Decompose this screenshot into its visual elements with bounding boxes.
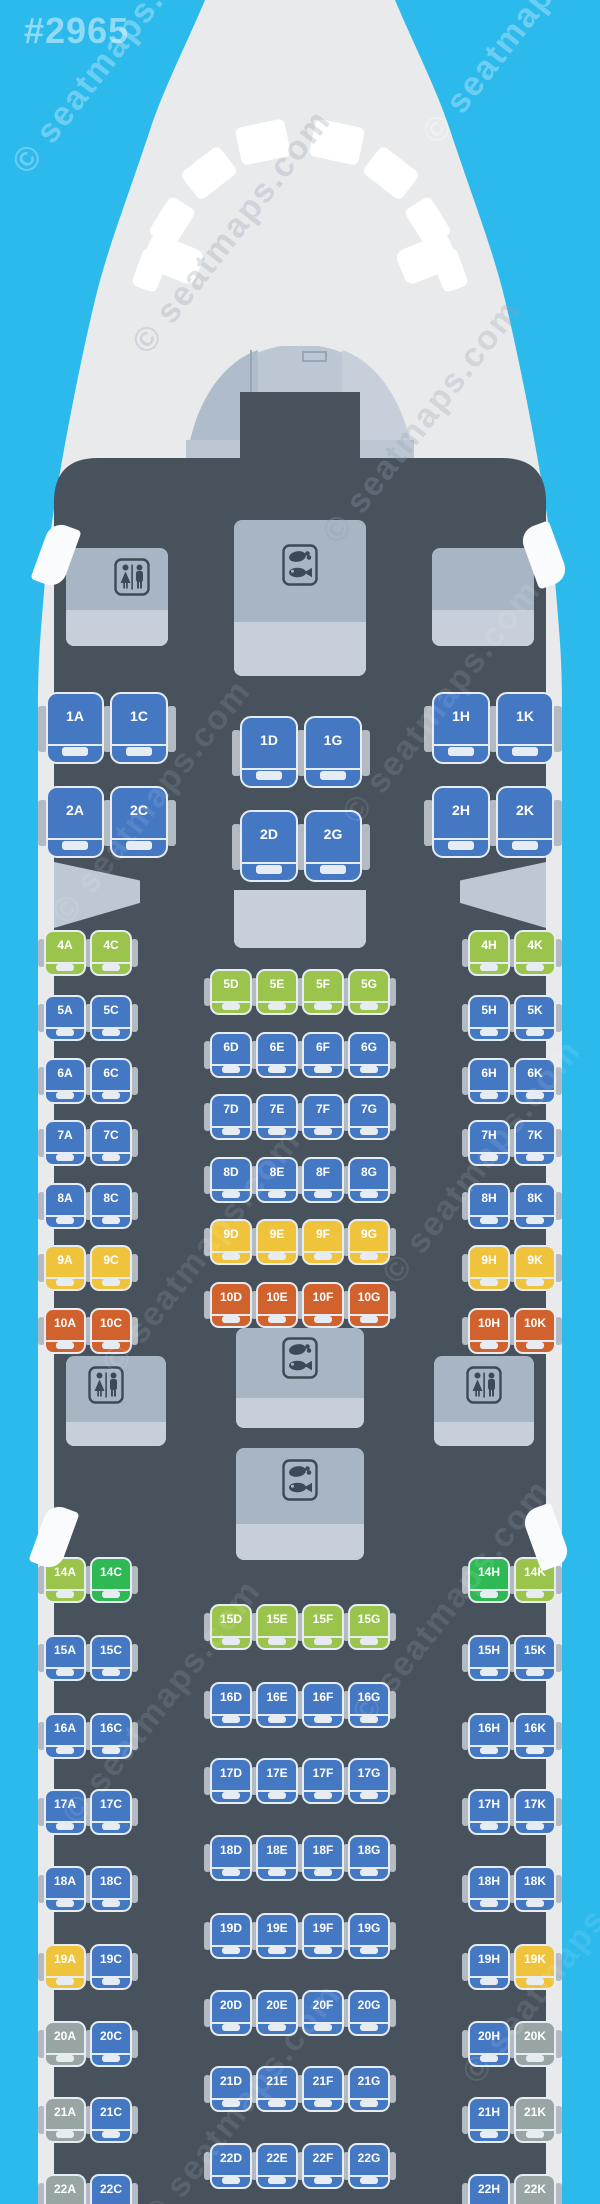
seat-label: 7G: [361, 1102, 377, 1116]
seat-19f[interactable]: 19F: [302, 1913, 344, 1959]
armrest: [389, 1228, 396, 1256]
seat-label: 19A: [54, 1952, 76, 1966]
seat-2c[interactable]: 2C: [110, 786, 168, 858]
seat-label: 2G: [324, 826, 343, 842]
armrest: [389, 1166, 396, 1194]
seat-15k[interactable]: 15K: [514, 1635, 556, 1681]
seat-20h[interactable]: 20H: [468, 2021, 510, 2067]
seat-label: 5G: [361, 977, 377, 991]
seat-17a[interactable]: 17A: [44, 1789, 86, 1835]
seat-10k[interactable]: 10K: [514, 1308, 556, 1354]
seat-1c[interactable]: 1C: [110, 692, 168, 764]
armrest: [553, 706, 562, 752]
seat-label: 19G: [358, 1921, 381, 1935]
seat-label: 16H: [478, 1721, 500, 1735]
seat-label: 19K: [524, 1952, 546, 1966]
seat-7f[interactable]: 7F: [302, 1094, 344, 1140]
seat-19d[interactable]: 19D: [210, 1913, 252, 1959]
monument-counter: [432, 610, 534, 646]
armrest: [555, 1129, 562, 1157]
seat-label: 7K: [527, 1128, 542, 1142]
seat-label: 21A: [54, 2105, 76, 2119]
seat-label: 22C: [100, 2182, 122, 2196]
seat-7e[interactable]: 7E: [256, 1094, 298, 1140]
seat-9f[interactable]: 9F: [302, 1219, 344, 1265]
seat-label: 15H: [478, 1643, 500, 1657]
mid-galley-divider: [234, 890, 366, 948]
seat-10c[interactable]: 10C: [90, 1308, 132, 1354]
seat-label: 4H: [481, 938, 496, 952]
seat-label: 4C: [103, 938, 118, 952]
seat-6e[interactable]: 6E: [256, 1032, 298, 1078]
seat-7c[interactable]: 7C: [90, 1120, 132, 1166]
seat-21h[interactable]: 21H: [468, 2097, 510, 2143]
seat-16e[interactable]: 16E: [256, 1682, 298, 1728]
mid-galley-forward: [236, 1328, 364, 1428]
seat-9e[interactable]: 9E: [256, 1219, 298, 1265]
seat-20e[interactable]: 20E: [256, 1990, 298, 2036]
armrest: [131, 2030, 138, 2058]
seat-label: 7D: [223, 1102, 238, 1116]
meal-icon: [282, 1337, 318, 1384]
seat-8k[interactable]: 8K: [514, 1183, 556, 1229]
seat-label: 20E: [266, 1998, 287, 2012]
seat-label: 1G: [324, 732, 343, 748]
seat-15g[interactable]: 15G: [348, 1604, 390, 1650]
wc-icon: [88, 1366, 124, 1404]
seat-label: 16F: [313, 1690, 334, 1704]
seat-label: 1H: [452, 708, 470, 724]
seat-1d[interactable]: 1D: [240, 716, 298, 788]
monument-counter: [434, 1422, 534, 1446]
seat-label: 21G: [358, 2074, 381, 2088]
seat-18k[interactable]: 18K: [514, 1866, 556, 1912]
armrest: [555, 1875, 562, 1903]
seat-4c[interactable]: 4C: [90, 930, 132, 976]
seat-22a[interactable]: 22A: [44, 2174, 86, 2204]
seat-label: 15E: [266, 1612, 287, 1626]
seat-18f[interactable]: 18F: [302, 1835, 344, 1881]
wc-icon: [114, 558, 150, 596]
seat-1k[interactable]: 1K: [496, 692, 554, 764]
meal-icon: [282, 544, 318, 591]
seat-label: 7E: [270, 1102, 285, 1116]
seat-18e[interactable]: 18E: [256, 1835, 298, 1881]
seat-label: 2C: [130, 802, 148, 818]
seat-15c[interactable]: 15C: [90, 1635, 132, 1681]
armrest: [167, 800, 176, 846]
seat-5h[interactable]: 5H: [468, 995, 510, 1041]
seat-16g[interactable]: 16G: [348, 1682, 390, 1728]
armrest: [131, 1004, 138, 1032]
seat-14c[interactable]: 14C: [90, 1557, 132, 1603]
seat-20k[interactable]: 20K: [514, 2021, 556, 2067]
armrest: [389, 1999, 396, 2027]
front-galley-right: [432, 548, 534, 646]
armrest: [555, 2106, 562, 2134]
seat-label: 5C: [103, 1003, 118, 1017]
seat-20c[interactable]: 20C: [90, 2021, 132, 2067]
seat-19c[interactable]: 19C: [90, 1944, 132, 1990]
seat-17c[interactable]: 17C: [90, 1789, 132, 1835]
seat-label: 9A: [57, 1253, 72, 1267]
seat-4k[interactable]: 4K: [514, 930, 556, 976]
seat-label: 8K: [527, 1191, 542, 1205]
seat-9a[interactable]: 9A: [44, 1245, 86, 1291]
seat-15a[interactable]: 15A: [44, 1635, 86, 1681]
seat-22d[interactable]: 22D: [210, 2143, 252, 2189]
seat-label: 20K: [524, 2029, 546, 2043]
monument-counter: [66, 610, 168, 646]
seat-16h[interactable]: 16H: [468, 1713, 510, 1759]
seat-label: 17F: [313, 1766, 334, 1780]
seat-label: 18C: [100, 1874, 122, 1888]
seat-label: 2K: [516, 802, 534, 818]
seat-label: 20A: [54, 2029, 76, 2043]
seat-1g[interactable]: 1G: [304, 716, 362, 788]
seat-22h[interactable]: 22H: [468, 2174, 510, 2204]
seat-2g[interactable]: 2G: [304, 810, 362, 882]
seat-21g[interactable]: 21G: [348, 2066, 390, 2112]
seat-6a[interactable]: 6A: [44, 1058, 86, 1104]
seat-18c[interactable]: 18C: [90, 1866, 132, 1912]
seat-9c[interactable]: 9C: [90, 1245, 132, 1291]
seat-19e[interactable]: 19E: [256, 1913, 298, 1959]
armrest: [555, 939, 562, 967]
armrest: [555, 2030, 562, 2058]
seat-label: 7H: [481, 1128, 496, 1142]
armrest: [555, 1566, 562, 1594]
seat-16a[interactable]: 16A: [44, 1713, 86, 1759]
seat-6g[interactable]: 6G: [348, 1032, 390, 1078]
seat-label: 20H: [478, 2029, 500, 2043]
monument-counter: [234, 622, 366, 676]
armrest: [389, 1103, 396, 1131]
seat-17k[interactable]: 17K: [514, 1789, 556, 1835]
monument-counter: [66, 1422, 166, 1446]
wc-icon: [114, 558, 150, 601]
seat-5f[interactable]: 5F: [302, 969, 344, 1015]
seat-10f[interactable]: 10F: [302, 1282, 344, 1328]
seat-8d[interactable]: 8D: [210, 1157, 252, 1203]
seat-22g[interactable]: 22G: [348, 2143, 390, 2189]
wc-icon: [466, 1366, 502, 1409]
armrest: [389, 1291, 396, 1319]
armrest: [131, 1317, 138, 1345]
seat-label: 16D: [220, 1690, 242, 1704]
seat-label: 18A: [54, 1874, 76, 1888]
seat-9d[interactable]: 9D: [210, 1219, 252, 1265]
seat-10h[interactable]: 10H: [468, 1308, 510, 1354]
seat-7a[interactable]: 7A: [44, 1120, 86, 1166]
armrest: [131, 1722, 138, 1750]
seat-label: 18D: [220, 1843, 242, 1857]
seat-label: 19C: [100, 1952, 122, 1966]
armrest: [131, 1566, 138, 1594]
seat-label: 6F: [316, 1040, 330, 1054]
seat-label: 22H: [478, 2182, 500, 2196]
seat-1a[interactable]: 1A: [46, 692, 104, 764]
seat-label: 9C: [103, 1253, 118, 1267]
seat-label: 19H: [478, 1952, 500, 1966]
seat-label: 5A: [57, 1003, 72, 1017]
armrest: [131, 1254, 138, 1282]
seat-8h[interactable]: 8H: [468, 1183, 510, 1229]
seat-8e[interactable]: 8E: [256, 1157, 298, 1203]
armrest: [389, 1041, 396, 1069]
seat-label: 1C: [130, 708, 148, 724]
armrest: [555, 1722, 562, 1750]
seat-15d[interactable]: 15D: [210, 1604, 252, 1650]
seat-label: 22G: [358, 2151, 381, 2165]
seat-label: 20C: [100, 2029, 122, 2043]
seat-label: 1A: [66, 708, 84, 724]
seat-label: 19F: [313, 1921, 334, 1935]
seat-8a[interactable]: 8A: [44, 1183, 86, 1229]
seat-label: 18F: [313, 1843, 334, 1857]
armrest: [131, 1067, 138, 1095]
seat-2a[interactable]: 2A: [46, 786, 104, 858]
seat-label: 22F: [313, 2151, 334, 2165]
seat-6k[interactable]: 6K: [514, 1058, 556, 1104]
armrest: [131, 1192, 138, 1220]
seat-5k[interactable]: 5K: [514, 995, 556, 1041]
seat-label: 17C: [100, 1797, 122, 1811]
seat-21c[interactable]: 21C: [90, 2097, 132, 2143]
seat-label: 22K: [524, 2182, 546, 2196]
seat-16k[interactable]: 16K: [514, 1713, 556, 1759]
seat-20g[interactable]: 20G: [348, 1990, 390, 2036]
seat-label: 6C: [103, 1066, 118, 1080]
seat-label: 8A: [57, 1191, 72, 1205]
front-lavatory-left: [66, 548, 168, 646]
seat-label: 15K: [524, 1643, 546, 1657]
seat-5g[interactable]: 5G: [348, 969, 390, 1015]
seat-label: 18E: [266, 1843, 287, 1857]
seat-5e[interactable]: 5E: [256, 969, 298, 1015]
seat-label: 21F: [313, 2074, 334, 2088]
seat-20a[interactable]: 20A: [44, 2021, 86, 2067]
seat-6c[interactable]: 6C: [90, 1058, 132, 1104]
seat-4a[interactable]: 4A: [44, 930, 86, 976]
seat-9g[interactable]: 9G: [348, 1219, 390, 1265]
seat-15h[interactable]: 15H: [468, 1635, 510, 1681]
seat-label: 15C: [100, 1643, 122, 1657]
seat-7g[interactable]: 7G: [348, 1094, 390, 1140]
armrest: [131, 1798, 138, 1826]
armrest: [361, 824, 370, 870]
seat-5c[interactable]: 5C: [90, 995, 132, 1041]
seat-label: 22E: [266, 2151, 287, 2165]
seat-label: 8G: [361, 1165, 377, 1179]
seat-label: 14A: [54, 1565, 76, 1579]
seat-14h[interactable]: 14H: [468, 1557, 510, 1603]
seat-label: 14C: [100, 1565, 122, 1579]
seat-18g[interactable]: 18G: [348, 1835, 390, 1881]
seat-21d[interactable]: 21D: [210, 2066, 252, 2112]
seat-label: 10K: [524, 1316, 546, 1330]
armrest: [555, 1798, 562, 1826]
seat-label: 1K: [516, 708, 534, 724]
seat-label: 6G: [361, 1040, 377, 1054]
seat-8g[interactable]: 8G: [348, 1157, 390, 1203]
seat-label: 18K: [524, 1874, 546, 1888]
seat-label: 14H: [478, 1565, 500, 1579]
seat-label: 16C: [100, 1721, 122, 1735]
seat-9k[interactable]: 9K: [514, 1245, 556, 1291]
seat-label: 8C: [103, 1191, 118, 1205]
seat-15e[interactable]: 15E: [256, 1604, 298, 1650]
armrest: [553, 800, 562, 846]
seat-label: 10C: [100, 1316, 122, 1330]
seat-4h[interactable]: 4H: [468, 930, 510, 976]
seat-21f[interactable]: 21F: [302, 2066, 344, 2112]
seat-label: 20G: [358, 1998, 381, 2012]
seat-label: 20D: [220, 1998, 242, 2012]
seat-label: 22A: [54, 2182, 76, 2196]
armrest: [131, 1644, 138, 1672]
seat-16c[interactable]: 16C: [90, 1713, 132, 1759]
seat-8f[interactable]: 8F: [302, 1157, 344, 1203]
mid-lavatory-right: [434, 1356, 534, 1446]
seat-label: 10H: [478, 1316, 500, 1330]
seat-19k[interactable]: 19K: [514, 1944, 556, 1990]
armrest: [555, 1953, 562, 1981]
mid-lavatory-left: [66, 1356, 166, 1446]
seat-label: 9G: [361, 1227, 377, 1241]
seat-label: 18H: [478, 1874, 500, 1888]
seat-label: 1D: [260, 732, 278, 748]
seat-label: 22D: [220, 2151, 242, 2165]
seat-16d[interactable]: 16D: [210, 1682, 252, 1728]
seat-10a[interactable]: 10A: [44, 1308, 86, 1354]
armrest: [389, 1844, 396, 1872]
seat-18a[interactable]: 18A: [44, 1866, 86, 1912]
seat-6f[interactable]: 6F: [302, 1032, 344, 1078]
seat-1h[interactable]: 1H: [432, 692, 490, 764]
seat-10g[interactable]: 10G: [348, 1282, 390, 1328]
armrest: [131, 2106, 138, 2134]
seat-7k[interactable]: 7K: [514, 1120, 556, 1166]
wc-icon: [466, 1366, 502, 1404]
seat-16f[interactable]: 16F: [302, 1682, 344, 1728]
seat-8c[interactable]: 8C: [90, 1183, 132, 1229]
seat-label: 17G: [358, 1766, 381, 1780]
seat-label: 5F: [316, 977, 330, 991]
armrest: [389, 1922, 396, 1950]
armrest: [389, 1767, 396, 1795]
map-id: #2965: [24, 10, 129, 52]
seat-label: 8H: [481, 1191, 496, 1205]
seat-22c[interactable]: 22C: [90, 2174, 132, 2204]
seat-15f[interactable]: 15F: [302, 1604, 344, 1650]
seat-6d[interactable]: 6D: [210, 1032, 252, 1078]
seat-2h[interactable]: 2H: [432, 786, 490, 858]
seat-20d[interactable]: 20D: [210, 1990, 252, 2036]
seat-22e[interactable]: 22E: [256, 2143, 298, 2189]
seat-label: 9F: [316, 1227, 330, 1241]
seat-17f[interactable]: 17F: [302, 1758, 344, 1804]
front-galley-center: [234, 520, 366, 676]
seat-label: 15F: [313, 1612, 334, 1626]
seatmap-canvas: #2965: [0, 0, 600, 2204]
armrest: [389, 2152, 396, 2180]
seat-7h[interactable]: 7H: [468, 1120, 510, 1166]
seat-label: 21D: [220, 2074, 242, 2088]
seat-label: 4A: [57, 938, 72, 952]
seat-label: 5H: [481, 1003, 496, 1017]
seat-label: 7F: [316, 1102, 330, 1116]
armrest: [389, 978, 396, 1006]
seat-18d[interactable]: 18D: [210, 1835, 252, 1881]
seat-20f[interactable]: 20F: [302, 1990, 344, 2036]
armrest: [555, 1192, 562, 1220]
seat-label: 7C: [103, 1128, 118, 1142]
seat-7d[interactable]: 7D: [210, 1094, 252, 1140]
meal-icon: [282, 1337, 318, 1379]
seat-label: 9E: [270, 1227, 285, 1241]
armrest: [555, 1644, 562, 1672]
seat-label: 6E: [270, 1040, 285, 1054]
seat-18h[interactable]: 18H: [468, 1866, 510, 1912]
seat-5a[interactable]: 5A: [44, 995, 86, 1041]
seat-label: 17E: [266, 1766, 287, 1780]
armrest: [389, 1691, 396, 1719]
seat-17h[interactable]: 17H: [468, 1789, 510, 1835]
seat-10d[interactable]: 10D: [210, 1282, 252, 1328]
armrest: [555, 1317, 562, 1345]
mid-galley-aft: [236, 1448, 364, 1560]
seat-label: 15G: [358, 1612, 381, 1626]
seat-2d[interactable]: 2D: [240, 810, 298, 882]
seat-5d[interactable]: 5D: [210, 969, 252, 1015]
seat-label: 8F: [316, 1165, 330, 1179]
armrest: [555, 2183, 562, 2204]
seat-6h[interactable]: 6H: [468, 1058, 510, 1104]
armrest: [555, 1004, 562, 1032]
seat-19h[interactable]: 19H: [468, 1944, 510, 1990]
seat-label: 16A: [54, 1721, 76, 1735]
seat-9h[interactable]: 9H: [468, 1245, 510, 1291]
seat-19g[interactable]: 19G: [348, 1913, 390, 1959]
seat-22f[interactable]: 22F: [302, 2143, 344, 2189]
seat-21k[interactable]: 21K: [514, 2097, 556, 2143]
seat-label: 8E: [270, 1165, 285, 1179]
seat-label: 10A: [54, 1316, 76, 1330]
seat-21e[interactable]: 21E: [256, 2066, 298, 2112]
seat-10e[interactable]: 10E: [256, 1282, 298, 1328]
seat-label: 10D: [220, 1290, 242, 1304]
seat-21a[interactable]: 21A: [44, 2097, 86, 2143]
seat-label: 6K: [527, 1066, 542, 1080]
seat-17g[interactable]: 17G: [348, 1758, 390, 1804]
seat-label: 8D: [223, 1165, 238, 1179]
seat-22k[interactable]: 22K: [514, 2174, 556, 2204]
seat-label: 17H: [478, 1797, 500, 1811]
seat-2k[interactable]: 2K: [496, 786, 554, 858]
armrest: [131, 939, 138, 967]
seat-label: 9K: [527, 1253, 542, 1267]
monument-counter: [236, 1398, 364, 1428]
seat-label: 19E: [266, 1921, 287, 1935]
seat-17e[interactable]: 17E: [256, 1758, 298, 1804]
seat-label: 15D: [220, 1612, 242, 1626]
seat-19a[interactable]: 19A: [44, 1944, 86, 1990]
seat-label: 17A: [54, 1797, 76, 1811]
armrest: [131, 1953, 138, 1981]
seat-17d[interactable]: 17D: [210, 1758, 252, 1804]
seat-label: 17D: [220, 1766, 242, 1780]
